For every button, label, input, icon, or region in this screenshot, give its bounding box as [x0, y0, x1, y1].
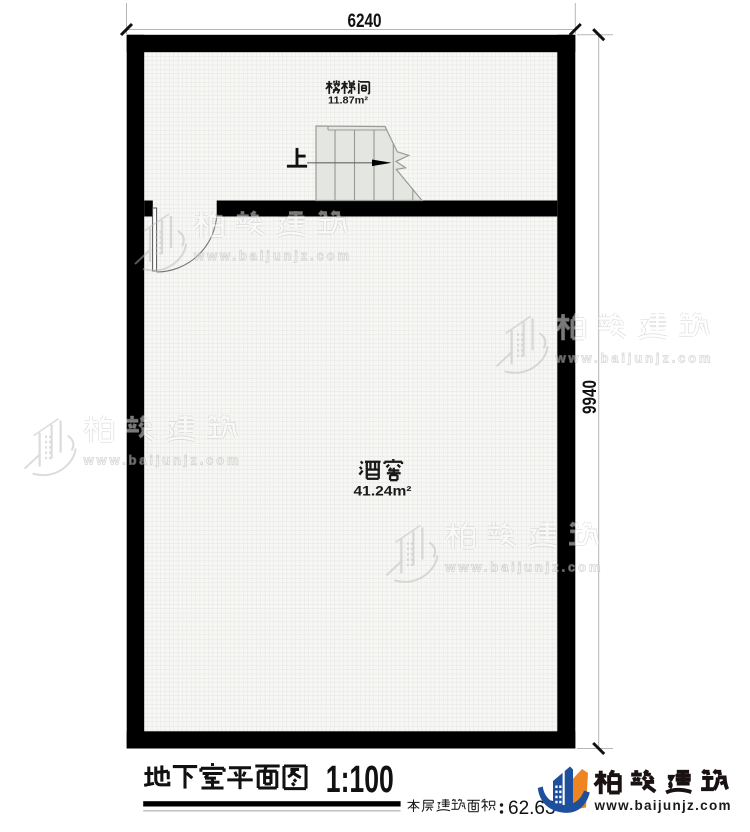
svg-text:1:100: 1:100: [326, 759, 394, 801]
svg-text:11.87m²: 11.87m²: [328, 95, 369, 107]
svg-text:9940: 9940: [580, 380, 601, 414]
svg-text:www.baijunjz.com: www.baijunjz.com: [594, 798, 731, 813]
svg-text:6240: 6240: [348, 11, 382, 32]
svg-text:41.24m²: 41.24m²: [354, 483, 412, 499]
